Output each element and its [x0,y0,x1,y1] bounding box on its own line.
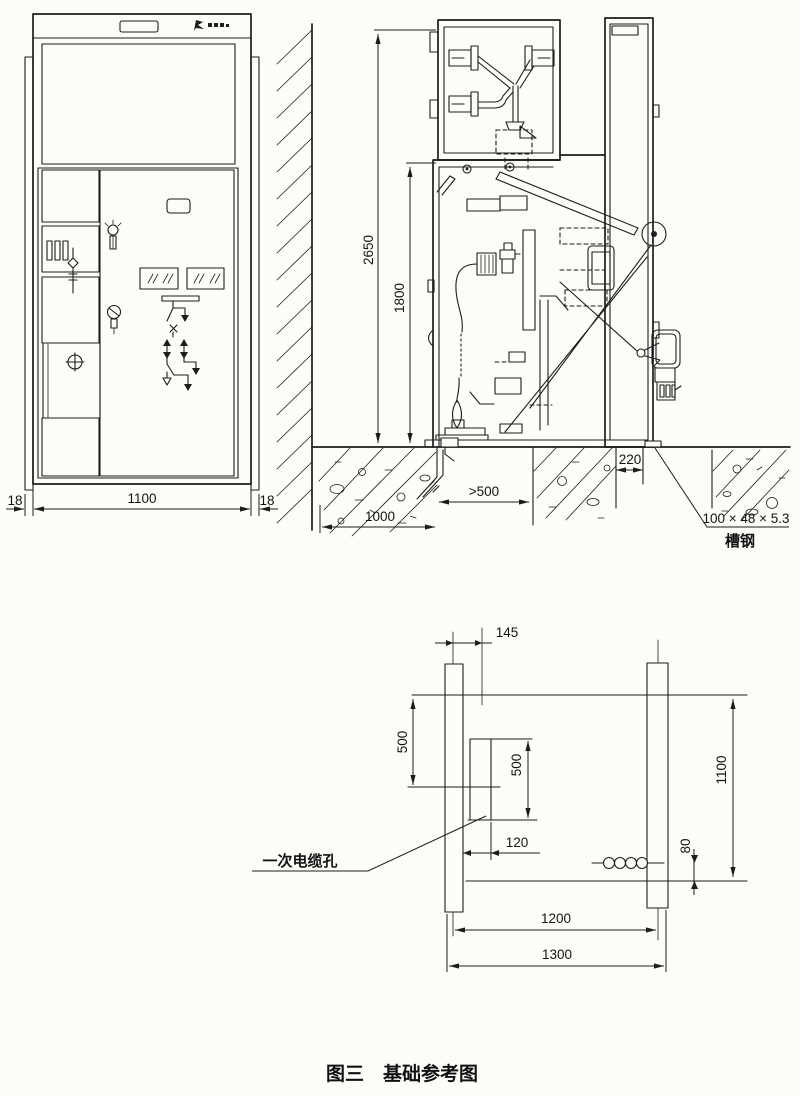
left-flange [25,57,33,490]
dim-18-left: 18 [7,493,22,508]
push-button-icon [66,353,84,371]
foundation-section: 220 >500 1000 100 × 48 × 5.3 槽钢 [312,438,790,550]
cable [456,264,477,332]
channel-steel-size: 100 × 48 × 5.3 [702,511,789,526]
nameplate [120,21,158,32]
foundation-plan: 145 500 500 120 1100 80 1200 1300 一次电缆孔 [252,625,747,972]
dim-2650: 2650 [361,235,376,265]
left-rail [445,664,463,912]
drawing-sheet: 18 1100 18 [0,0,800,1096]
technical-drawing: 18 1100 18 [0,0,800,1096]
figure-caption: 图三 基础参考图 [326,1062,478,1085]
primary-cable-hole [470,739,491,820]
dim-1800: 1800 [392,283,407,313]
key-lock-icon [108,306,121,335]
rear-compartment [605,18,659,447]
upper-door [42,44,235,164]
meter-window [187,268,224,289]
busbar-compartment [430,20,560,172]
indicator-plate [167,199,190,213]
front-dimensions: 18 1100 18 [6,488,278,516]
panel-lock-icon [68,248,78,293]
wall-section [277,24,312,530]
right-flange [251,57,259,490]
dim-1300: 1300 [542,947,572,962]
dim-1000: 1000 [365,509,395,524]
cable-hole-label: 一次电缆孔 [262,852,337,870]
dim-1200: 1200 [541,911,571,926]
brand-logo [194,20,229,31]
vent-slots [47,241,68,260]
dim-500-hole: 500 [509,754,524,777]
meter-window [140,268,178,289]
side-view: 2650 1800 [361,18,681,447]
dim-1100: 1100 [127,491,156,506]
key-lock-icon [105,220,121,249]
dim-80: 80 [678,838,693,853]
dim-145: 145 [496,625,519,640]
side-dimensions: 2650 1800 [361,30,436,443]
right-rail [647,663,668,908]
front-view: 18 1100 18 [6,14,278,516]
channel-steel-rear [645,441,661,447]
dim-1100-plan: 1100 [714,755,729,784]
wall-hatch [277,30,312,523]
dim-18-right: 18 [259,493,274,508]
dim-220: 220 [619,452,642,467]
lower-door [100,170,234,476]
center-foundation [534,448,616,520]
dim-500-left: 500 [395,731,410,754]
channel-steel-label: 槽钢 [725,532,755,550]
dim-gt500: >500 [469,484,499,499]
dim-120: 120 [506,835,529,850]
breaker-compartment [425,155,666,447]
mimic-diagram [162,296,200,391]
foundation-dimensions: 220 >500 1000 100 × 48 × 5.3 槽钢 [320,448,790,550]
